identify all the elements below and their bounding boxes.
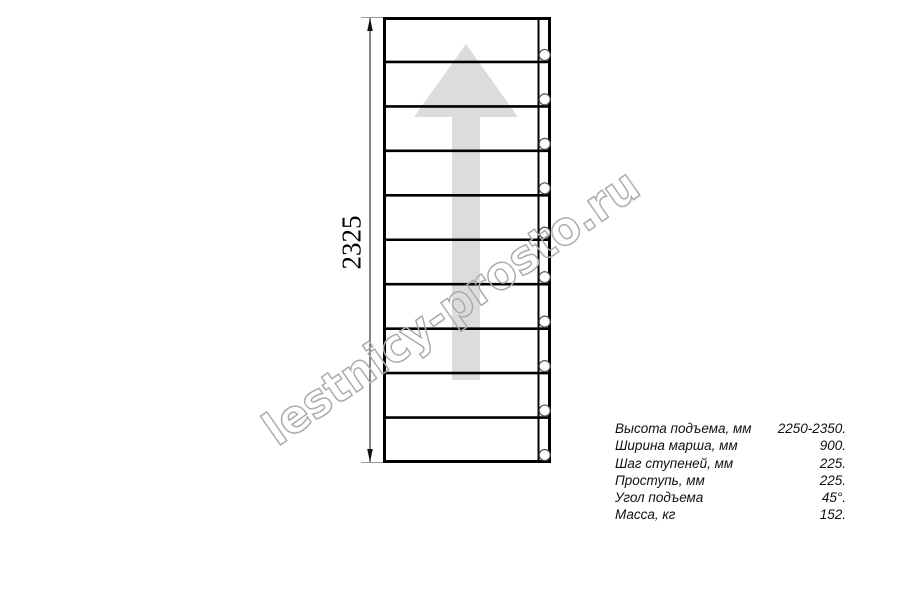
drawing-page: lestnicy-prosto.ru 2325 Высота подъема, …	[0, 0, 900, 600]
spec-row: Проступь, мм 225.	[615, 472, 846, 489]
spec-row: Высота подъема, мм 2250-2350.	[615, 420, 846, 437]
watermark-text: lestnicy-prosto.ru	[253, 158, 649, 456]
baluster-marker-icon	[539, 183, 550, 194]
spec-value: 225.	[820, 472, 846, 489]
baluster-marker-icon	[539, 94, 550, 105]
dimension-label: 2325	[337, 211, 368, 275]
spec-row: Ширина марша, мм 900.	[615, 437, 846, 454]
spec-table: Высота подъема, мм 2250-2350. Ширина мар…	[615, 420, 846, 524]
baluster-marker-icon	[539, 49, 550, 60]
spec-label: Проступь, мм	[615, 472, 705, 489]
spec-label: Шаг ступеней, мм	[615, 455, 733, 472]
spec-label: Масса, кг	[615, 506, 675, 523]
dimension-arrow-up-icon	[367, 18, 373, 31]
spec-value: 152.	[820, 506, 846, 523]
spec-label: Ширина марша, мм	[615, 437, 738, 454]
baluster-marker-icon	[539, 316, 550, 327]
baluster-marker-icon	[539, 405, 550, 416]
spec-label: Высота подъема, мм	[615, 420, 751, 437]
baluster-marker-icon	[539, 138, 550, 149]
spec-row: Шаг ступеней, мм 225.	[615, 455, 846, 472]
baluster-marker-icon	[539, 361, 550, 372]
spec-label: Угол подъема	[615, 489, 703, 506]
spec-row: Угол подъема 45°.	[615, 489, 846, 506]
spec-value: 45°.	[822, 489, 846, 506]
spec-value: 2250-2350.	[778, 420, 846, 437]
spec-value: 225.	[820, 455, 846, 472]
spec-value: 900.	[820, 437, 846, 454]
baluster-marker-icon	[539, 450, 550, 461]
spec-row: Масса, кг 152.	[615, 506, 846, 523]
dimension-arrow-down-icon	[367, 449, 373, 462]
